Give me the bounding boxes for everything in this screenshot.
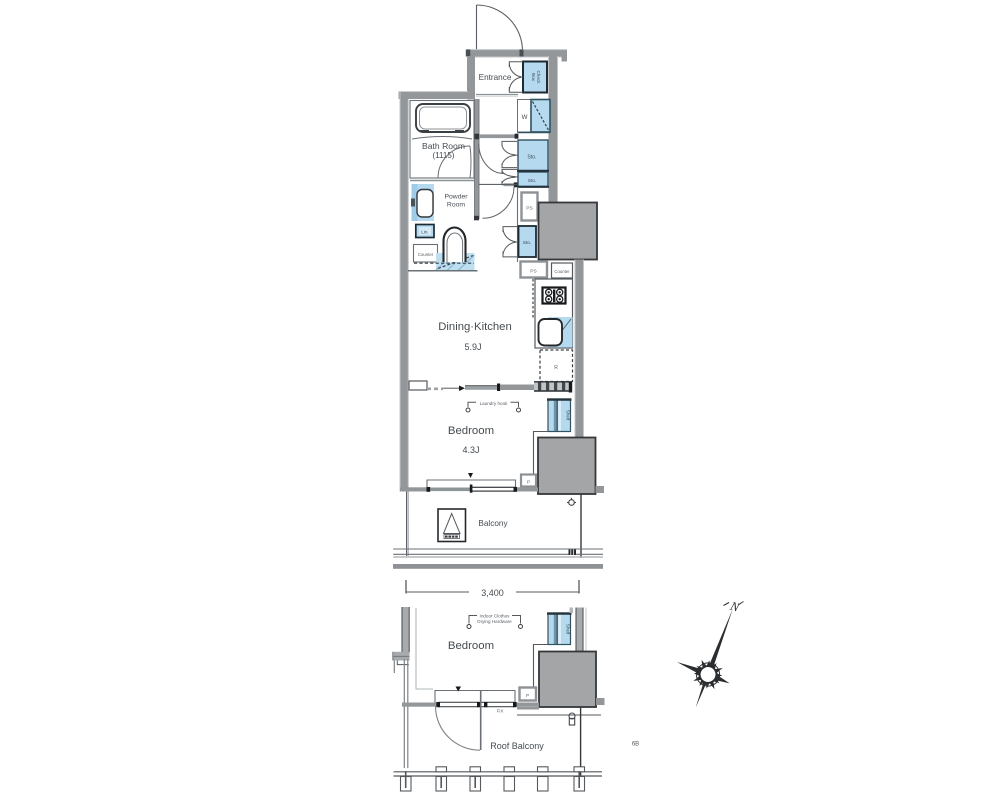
svg-text:PS: PS (530, 269, 536, 275)
svg-text:PS: PS (526, 206, 532, 212)
svg-text:Sto.: Sto. (528, 178, 537, 184)
svg-text:Drying Hardware: Drying Hardware (477, 619, 512, 624)
svg-text:4.3J: 4.3J (462, 445, 479, 455)
svg-text:3,400: 3,400 (481, 588, 504, 598)
svg-text:6B: 6B (632, 742, 639, 748)
svg-text:Lin.: Lin. (421, 230, 428, 235)
svg-text:Sto.: Sto. (527, 155, 536, 161)
svg-text:Room: Room (447, 202, 465, 209)
svg-text:P: P (527, 480, 530, 485)
svg-text:Roof Balcony: Roof Balcony (490, 741, 544, 751)
svg-text:Counter: Counter (554, 269, 570, 274)
svg-text:Laundry hook: Laundry hook (480, 401, 509, 406)
svg-text:Entrance: Entrance (479, 73, 512, 82)
svg-text:Counter: Counter (418, 252, 434, 257)
svg-text:5.9J: 5.9J (464, 342, 481, 352)
svg-text:Dining·Kitchen: Dining·Kitchen (438, 321, 511, 333)
svg-text:Shelf: Shelf (566, 624, 571, 635)
svg-text:Bath Room: Bath Room (422, 141, 465, 151)
svg-text:FIX: FIX (497, 709, 504, 714)
svg-text:W: W (522, 114, 528, 121)
svg-text:Box: Box (531, 73, 536, 82)
svg-text:Powder: Powder (444, 194, 468, 201)
svg-text:Bedroom: Bedroom (448, 425, 494, 437)
svg-text:R: R (554, 365, 558, 371)
svg-text:Shelf: Shelf (566, 410, 571, 421)
svg-text:Indoor Clothes: Indoor Clothes (480, 614, 511, 619)
svg-text:Balcony: Balcony (478, 519, 508, 528)
svg-text:Bedroom: Bedroom (448, 640, 494, 652)
svg-text:Sto.: Sto. (523, 240, 532, 246)
svg-text:P: P (526, 693, 529, 698)
